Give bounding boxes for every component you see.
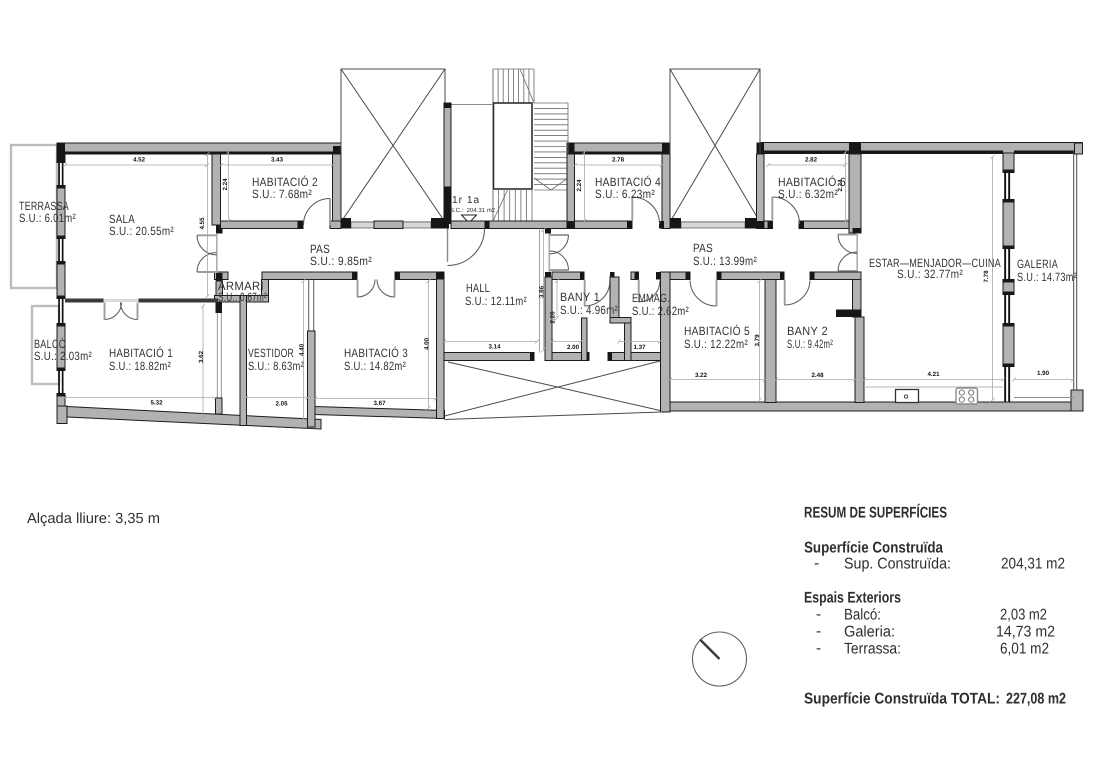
svg-text:HALL: HALL	[466, 281, 490, 295]
svg-text:-: -	[816, 606, 821, 623]
svg-text:2.24: 2.24	[576, 179, 583, 192]
svg-text:S.U.: 2.03m²: S.U.: 2.03m²	[34, 349, 92, 363]
svg-text:S.U.: 8.63m²: S.U.: 8.63m²	[248, 359, 304, 373]
svg-text:4.55: 4.55	[199, 217, 206, 230]
svg-text:-: -	[816, 640, 821, 657]
svg-text:S.U.: 6.01m²: S.U.: 6.01m²	[19, 211, 76, 225]
svg-text:2.05: 2.05	[275, 401, 288, 408]
svg-text:-: -	[814, 555, 819, 572]
svg-text:14,73 m2: 14,73 m2	[996, 624, 1055, 641]
svg-text:1.37: 1.37	[633, 344, 646, 351]
svg-text:Superfície Construïda TOTAL:: Superfície Construïda TOTAL:	[804, 691, 1000, 708]
svg-text:S.U.: 20.55m²: S.U.: 20.55m²	[109, 224, 174, 238]
svg-text:S.U.: 9.85m²: S.U.: 9.85m²	[310, 254, 372, 268]
svg-text:S.U.: 6.23m²: S.U.: 6.23m²	[595, 187, 655, 201]
svg-text:5.32: 5.32	[150, 400, 163, 407]
svg-text:S.U.: 4.96m²: S.U.: 4.96m²	[560, 303, 618, 317]
svg-text:Sup. Construïda:: Sup. Construïda:	[844, 556, 951, 573]
svg-text:S.U.: 14.73m²: S.U.: 14.73m²	[1017, 270, 1077, 284]
svg-text:4.40: 4.40	[299, 343, 306, 356]
svg-text:BANY 2: BANY 2	[787, 324, 828, 338]
svg-text:S.U.: 7.68m²: S.U.: 7.68m²	[252, 187, 312, 201]
svg-text:-: -	[816, 623, 821, 640]
svg-text:4.21: 4.21	[927, 371, 940, 378]
svg-text:BANY 1: BANY 1	[560, 290, 600, 304]
svg-text:RESUM DE SUPERFÍCIES: RESUM DE SUPERFÍCIES	[804, 504, 947, 522]
svg-text:S.U.: 12.22m²: S.U.: 12.22m²	[684, 337, 748, 351]
svg-text:Balcó:: Balcó:	[844, 607, 881, 624]
svg-text:Superfície Construïda: Superfície Construïda	[804, 540, 943, 557]
svg-text:VESTIDOR: VESTIDOR	[248, 346, 294, 360]
svg-text:2.00: 2.00	[567, 344, 580, 351]
svg-text:HABITACIÓ 1: HABITACIÓ 1	[109, 346, 173, 360]
svg-text:2,03 m2: 2,03 m2	[1000, 607, 1047, 624]
svg-text:S.U.: 2.62m²: S.U.: 2.62m²	[632, 304, 689, 318]
svg-text:S.C.: 204.31 m2: S.C.: 204.31 m2	[450, 207, 496, 214]
svg-text:EMMAG.: EMMAG.	[632, 291, 670, 305]
svg-text:Alçada lliure: 3,35 m: Alçada lliure: 3,35 m	[27, 511, 160, 527]
svg-text:GALERIA: GALERIA	[1017, 257, 1058, 271]
svg-text:227,08 m2: 227,08 m2	[1006, 691, 1066, 708]
svg-text:3.62: 3.62	[198, 350, 205, 363]
svg-text:204,31 m2: 204,31 m2	[1001, 556, 1065, 573]
svg-text:3.43: 3.43	[271, 157, 284, 164]
svg-text:2.78: 2.78	[612, 157, 625, 164]
svg-text:S.U.: 9.42m²: S.U.: 9.42m²	[787, 337, 833, 351]
svg-text:Terrassa:: Terrassa:	[844, 641, 901, 658]
svg-text:S.U.: 12.11m²: S.U.: 12.11m²	[465, 294, 527, 308]
svg-text:HABITACIÓ 5: HABITACIÓ 5	[684, 324, 750, 338]
svg-text:Espais Exteriors: Espais Exteriors	[804, 590, 901, 607]
svg-text:3.14: 3.14	[488, 344, 501, 351]
svg-text:2.48: 2.48	[811, 372, 824, 379]
svg-text:S.U.: 32.77m²: S.U.: 32.77m²	[897, 267, 963, 281]
svg-text:1.90: 1.90	[1037, 370, 1050, 377]
svg-text:3.22: 3.22	[695, 372, 708, 379]
svg-text:6,01 m2: 6,01 m2	[1000, 641, 1049, 658]
svg-text:2.26: 2.26	[550, 311, 557, 324]
svg-text:4.00: 4.00	[424, 337, 431, 350]
svg-text:S.U.: 18.82m²: S.U.: 18.82m²	[109, 359, 171, 373]
svg-text:HABITACIÓ 3: HABITACIÓ 3	[344, 346, 408, 360]
svg-text:PAS: PAS	[693, 241, 713, 255]
svg-text:7.78: 7.78	[983, 270, 990, 283]
svg-text:2.24: 2.24	[222, 178, 229, 191]
svg-text:3.86: 3.86	[539, 285, 546, 298]
svg-text:4.52: 4.52	[133, 157, 146, 164]
svg-text:2.82: 2.82	[805, 157, 818, 164]
svg-text:S.U.: 0.67m²: S.U.: 0.67m²	[218, 290, 267, 304]
svg-text:S.U.: 13.99m²: S.U.: 13.99m²	[693, 254, 757, 268]
svg-text:1r 1a: 1r 1a	[452, 195, 480, 206]
svg-text:S.U.: 14.82m²: S.U.: 14.82m²	[344, 359, 406, 373]
svg-text:S.U.: 6.32m²: S.U.: 6.32m²	[778, 187, 838, 201]
svg-text:3.79: 3.79	[754, 334, 761, 347]
svg-text:Galeria:: Galeria:	[844, 624, 895, 641]
svg-text:3.67: 3.67	[373, 400, 386, 407]
